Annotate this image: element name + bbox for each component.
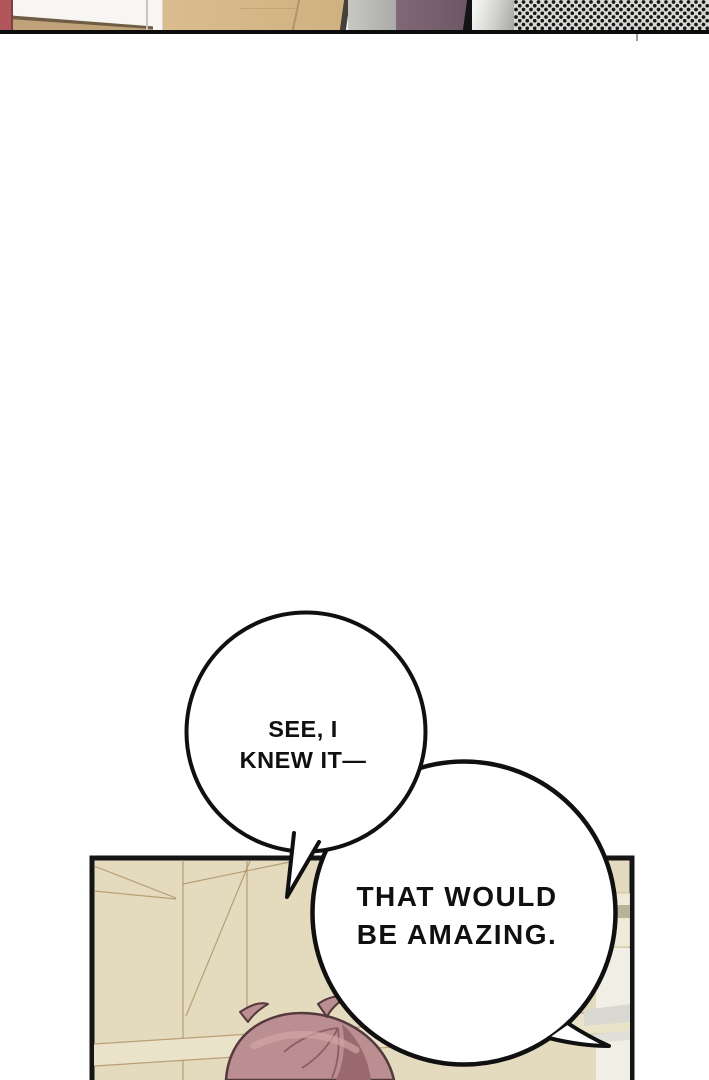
panel-scene: THAT WOULD BE AMAZING. SEE, I KNEW IT— — [0, 0, 709, 1080]
speech-bubble-2-line-2: BE AMAZING. — [357, 919, 558, 950]
speech-bubble-1-line-2: KNEW IT— — [240, 747, 367, 773]
shelf-smudge-detail — [617, 905, 631, 918]
speech-bubble-1-line-1: SEE, I — [268, 716, 338, 742]
speech-bubble-2-line-1: THAT WOULD — [356, 881, 557, 912]
comic-page: THAT WOULD BE AMAZING. SEE, I KNEW IT— — [0, 0, 709, 1080]
